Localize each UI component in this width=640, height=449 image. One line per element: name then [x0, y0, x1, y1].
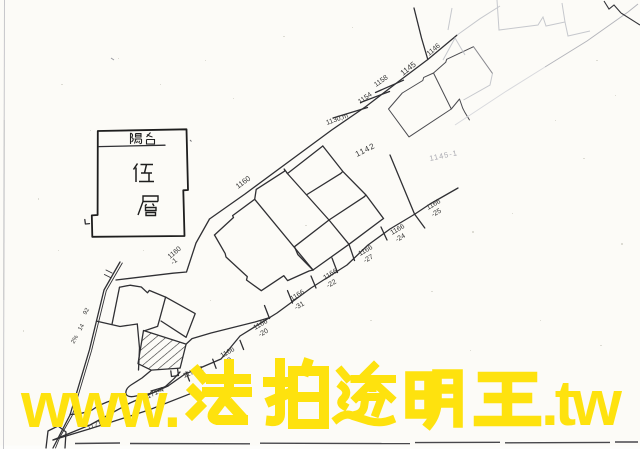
svg-text:www.: www.: [20, 369, 180, 441]
svg-text:.tw: .tw: [541, 367, 622, 439]
